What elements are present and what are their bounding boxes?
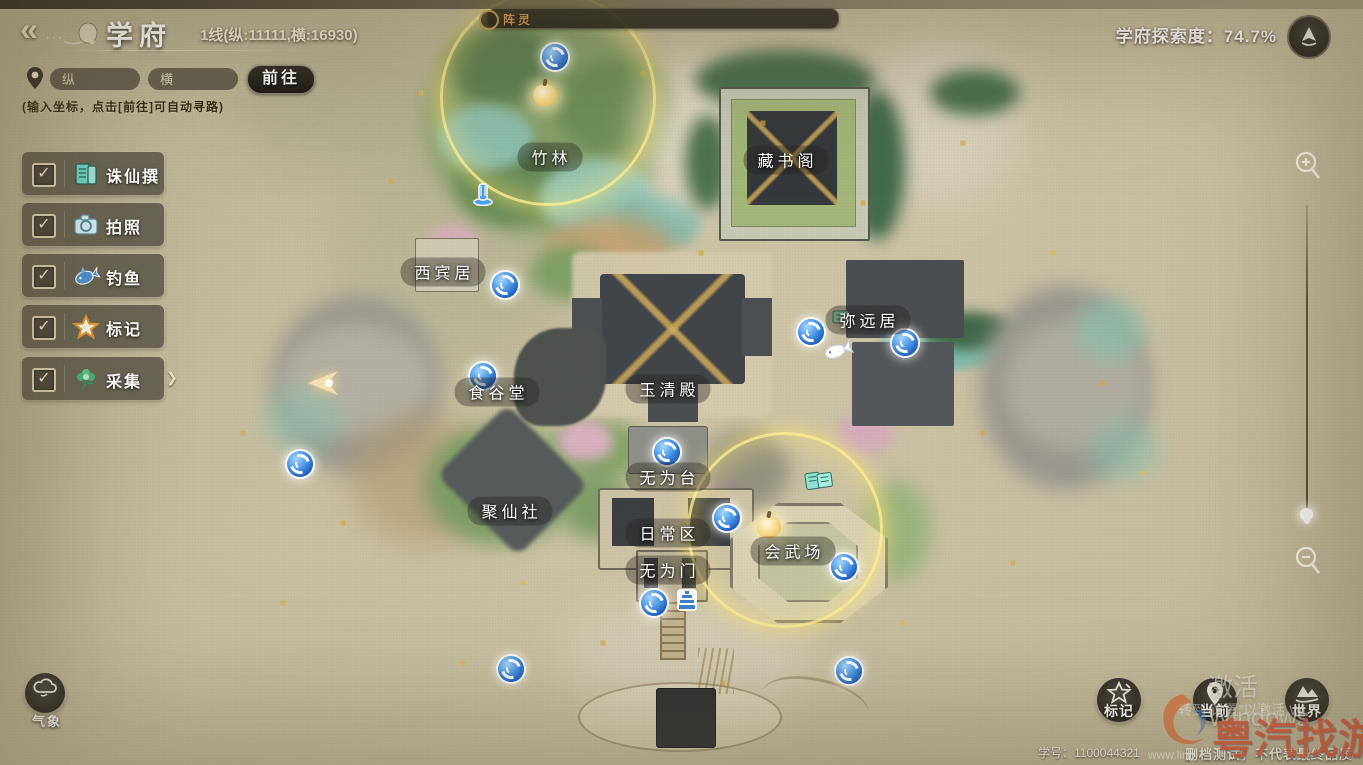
map-label-zhulin[interactable]: 竹林 (517, 143, 582, 172)
teleport-portal-icon[interactable] (287, 451, 313, 477)
map-label-juxianshe[interactable]: 聚仙社 (467, 497, 552, 526)
exploration-progress: 学府探索度：74.7% (1116, 22, 1277, 47)
pagoda-icon[interactable] (676, 588, 698, 617)
star-icon (72, 313, 100, 341)
mark-button-label: 标记 (1097, 701, 1141, 721)
spirit-bar-ornament-icon (479, 10, 499, 30)
sidebar-item-gather[interactable]: ✓ 采集 ❯ (22, 357, 164, 400)
world-button[interactable]: 世界 (1285, 678, 1329, 722)
player-arrow-icon (302, 368, 340, 403)
sidebar-item-fishing[interactable]: ✓ 钓鱼 (22, 254, 164, 297)
teleport-portal-icon[interactable] (654, 439, 680, 465)
collect-peach-icon[interactable] (757, 516, 781, 538)
sidebar-item-label: 采集 (106, 368, 142, 392)
terrain-water (1075, 300, 1145, 360)
building-yuqing-hall (600, 274, 745, 384)
compass-badge-icon[interactable] (1287, 15, 1331, 59)
checkbox-photo[interactable]: ✓ (32, 214, 56, 238)
coord-x-input[interactable] (148, 68, 238, 90)
world-button-label: 世界 (1285, 701, 1329, 721)
exploration-label: 学府探索度： (1116, 27, 1224, 46)
slider-dot (1304, 518, 1310, 524)
teleport-portal-icon[interactable] (542, 44, 568, 70)
mark-button[interactable]: 标记 (1097, 678, 1141, 722)
collect-peach-icon[interactable] (533, 84, 557, 106)
divider (64, 262, 65, 289)
teleport-portal-icon[interactable] (492, 272, 518, 298)
spirit-bar-label: 阵灵 (503, 11, 533, 28)
sidebar-item-label: 诛仙撰 (106, 163, 160, 187)
test-notice-text: 删档测试，不代表最终品质 (1185, 744, 1353, 763)
map-label-wuweitai[interactable]: 无为台 (625, 463, 710, 492)
sidebar-item-label: 钓鱼 (106, 265, 142, 289)
zoom-slider-track[interactable] (1306, 205, 1308, 517)
scroll-marker-icon[interactable] (802, 468, 835, 497)
weather-cloud-icon (25, 676, 65, 703)
zoom-out-icon[interactable] (1293, 545, 1323, 582)
map-label-cangshuge[interactable]: 藏书阁 (743, 146, 828, 175)
spirit-array-bar: 阵灵 (487, 8, 839, 29)
weather-button[interactable] (25, 673, 65, 713)
map-label-huiwuchang[interactable]: 会武场 (750, 537, 835, 566)
zhuxian-book-icon (72, 160, 100, 188)
coord-hint-text: (输入坐标，点击[前往]可自动寻路) (22, 98, 224, 115)
terrain-sakura (558, 420, 613, 462)
weather-button-label: 气象 (14, 711, 80, 730)
camera-icon (72, 211, 100, 239)
teleport-portal-icon[interactable] (831, 554, 857, 580)
map-label-yuqingdian[interactable]: 玉清殿 (625, 375, 710, 404)
line-coordinates: 1线(纵:11111,横:16930) (200, 24, 358, 45)
terrain-trees (930, 70, 1020, 115)
location-pin-icon (26, 66, 44, 95)
account-id-text: 学号：1100044321 (1038, 744, 1140, 761)
map-label-wuweimen[interactable]: 无为门 (625, 556, 710, 585)
fountain-icon[interactable] (472, 178, 494, 211)
teleport-portal-icon[interactable] (498, 656, 524, 682)
map-label-shigutang[interactable]: 食谷堂 (454, 378, 539, 407)
current-button[interactable]: 当前 (1193, 678, 1237, 722)
building-wing (742, 298, 772, 356)
sidebar-item-label: 拍照 (106, 214, 142, 238)
current-button-label: 当前 (1193, 701, 1237, 721)
divider (64, 313, 65, 340)
teleport-portal-icon[interactable] (714, 505, 740, 531)
divider (64, 160, 65, 187)
title-divider (58, 50, 338, 51)
fishing-spot-icon[interactable] (820, 338, 854, 369)
submenu-arrow-icon[interactable]: ❯ (166, 369, 178, 386)
map-screen: 竹林 藏书阁 西宾居 弥远居 玉清殿 食谷堂 无为台 聚仙社 日常区 会武场 无… (0, 0, 1363, 765)
checkbox-fishing[interactable]: ✓ (32, 265, 56, 289)
teleport-portal-icon[interactable] (836, 658, 862, 684)
terrain-water (1090, 420, 1160, 480)
checkbox-gather[interactable]: ✓ (32, 368, 56, 392)
sidebar-item-zhuxian[interactable]: ✓ 诛仙撰 (22, 152, 164, 195)
zoom-in-icon[interactable] (1293, 150, 1323, 187)
map-label-xibinju[interactable]: 西宾居 (400, 258, 485, 287)
plant-icon (72, 365, 100, 393)
divider (64, 365, 65, 392)
fish-icon (72, 262, 100, 290)
sidebar-item-label: 标记 (106, 316, 142, 340)
map-label-miyuanju[interactable]: 弥远居 (825, 306, 910, 335)
back-button[interactable]: « (12, 10, 46, 50)
divider (64, 211, 65, 238)
boat-cabin-sketch (656, 688, 716, 748)
page-title: 学府 (106, 14, 172, 53)
checkbox-zhuxian[interactable]: ✓ (32, 163, 56, 187)
sidebar-item-mark[interactable]: ✓ 标记 (22, 305, 164, 348)
sidebar-item-photo[interactable]: ✓ 拍照 (22, 203, 164, 246)
map-label-richangqu[interactable]: 日常区 (625, 519, 710, 548)
goto-button[interactable]: 前往 (247, 65, 315, 94)
teleport-portal-icon[interactable] (641, 590, 667, 616)
checkbox-mark[interactable]: ✓ (32, 316, 56, 340)
coord-y-input[interactable] (50, 68, 140, 90)
exploration-value: 74.7% (1224, 27, 1277, 46)
